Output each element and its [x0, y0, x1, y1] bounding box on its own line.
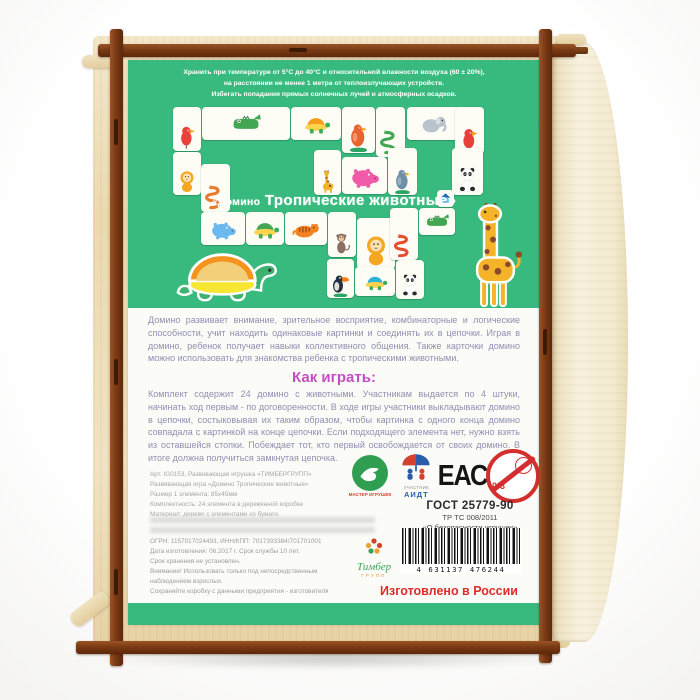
label-green-area: Хранить при температуре от 5°С до 40°С и… — [128, 60, 540, 308]
text-line: Дата изготовления: 06.2017 г. Срок служб… — [150, 547, 329, 557]
text-line: Арт. IG0153, Развивающая игрушка «ТИМБЕР… — [150, 470, 312, 480]
parrot-icon — [174, 108, 200, 150]
storage-note: Хранить при температуре от 5°С до 40°С и… — [128, 68, 540, 101]
made-in-russia: Изготовлено в России — [363, 584, 535, 598]
hippo-icon — [343, 158, 386, 193]
master-toys-icon — [352, 455, 388, 491]
master-toys-badge: МАСТЕР ИГРУШЕК — [348, 455, 392, 497]
game-title-main: Тропические животные» — [265, 192, 457, 209]
text-line: ОГРН: 1157017024493, ИНН/КПП: 7017393384… — [150, 537, 329, 547]
frame-bar-left — [110, 29, 123, 666]
monkey-icon — [329, 213, 355, 256]
turtle-icon — [356, 268, 394, 295]
certification-badges: МАСТЕР ИГРУШЕК УЧАСТНИК АИДТ ЕАС 0-3 — [348, 448, 540, 504]
age-warning-icon: 0-3 — [486, 449, 540, 503]
aidt-badge: УЧАСТНИК АИДТ — [394, 454, 438, 499]
domino-tile — [388, 148, 417, 195]
aidt-umbrella-icon — [399, 454, 433, 480]
domino-tile — [314, 150, 341, 195]
domino-tile — [246, 212, 284, 245]
lion-icon — [174, 153, 200, 194]
brand-sub: ГРУПП — [350, 573, 398, 578]
text-line: Сохраняйте коробку с данными предприятия… — [150, 587, 329, 597]
text-line: Внимание! Использовать только под непоср… — [150, 567, 329, 577]
text-line: наблюдением взрослых. — [150, 577, 329, 587]
product-details: Арт. IG0153, Развивающая игрушка «ТИМБЕР… — [150, 470, 312, 520]
elephant-icon — [408, 108, 459, 139]
text-line: Хранить при температуре от 5°С до 40°С и… — [128, 68, 540, 79]
panda-icon — [397, 261, 423, 298]
toucan-icon — [328, 260, 353, 297]
barcode: 4 631137 476244 — [400, 528, 522, 574]
domino-tile — [342, 157, 387, 194]
text-line: Размер 1 элемента: 85х45мм — [150, 490, 312, 500]
bird-icon — [343, 108, 374, 152]
how-to-play-heading: Как играть: — [128, 369, 540, 386]
domino-tile — [419, 208, 455, 235]
giraffe-illustration — [458, 202, 526, 308]
text-line: Комплектность: 24 элемента в деревянной … — [150, 500, 312, 510]
domino-tile — [173, 152, 201, 195]
domino-tile — [455, 107, 484, 154]
domino-tile — [201, 212, 245, 245]
frame-bar-right — [539, 29, 552, 663]
crocodile-icon — [203, 108, 289, 139]
game-title-prefix: «Домино — [212, 196, 261, 208]
game-title: «Домино Тропические животные» — [128, 192, 540, 210]
bird-icon — [389, 149, 416, 194]
wood-lid-panel — [552, 42, 628, 642]
domino-tile — [390, 208, 418, 260]
product-photo: Хранить при температуре от 5°С до 40°С и… — [0, 0, 700, 700]
barcode-stripes — [402, 528, 520, 564]
brand-logo: Тимбер ГРУПП — [350, 538, 398, 578]
domino-tile — [173, 107, 201, 151]
turtle-illustration — [174, 246, 292, 306]
brand-name: Тимбер — [350, 561, 398, 573]
domino-tile — [328, 212, 356, 257]
panda-icon — [453, 149, 482, 194]
barcode-digits: 4 631137 476244 — [402, 565, 520, 574]
text-line: Избегать попадания прямых солнечных луче… — [128, 90, 540, 101]
game-label: Хранить при температуре от 5°С до 40°С и… — [128, 60, 540, 625]
eac-mark: ЕАС — [438, 459, 487, 493]
turtle-icon — [247, 213, 283, 244]
about-text: Домино развивает внимание, зрительное во… — [148, 314, 520, 365]
parrot-icon — [456, 108, 483, 153]
domino-tile — [342, 107, 375, 153]
text-line: Развивающая игра «Домино Тропические жив… — [150, 480, 312, 490]
domino-tile — [291, 107, 341, 140]
turtle-icon — [292, 108, 340, 139]
text-line: Срок хранения не установлен. — [150, 557, 329, 567]
bottom-green-strip — [128, 603, 540, 625]
domino-tile — [202, 107, 290, 140]
tiger-icon — [286, 213, 326, 244]
crocodile-icon — [420, 209, 454, 234]
brand-tree-icon — [363, 538, 385, 556]
legal-info: ОГРН: 1157017024493, ИНН/КПП: 7017393384… — [150, 537, 329, 597]
frame-bar-bottom — [76, 641, 560, 654]
domino-tile — [285, 212, 327, 245]
domino-tile — [452, 148, 483, 195]
tr-ts-text: ТР ТС 008/2011 — [396, 513, 544, 522]
gost-text: ГОСТ 25779-90 — [396, 500, 544, 512]
domino-tile — [396, 260, 424, 299]
domino-tile — [407, 107, 460, 140]
text-line: на расстоянии не менее 1 метра от теплои… — [128, 79, 540, 90]
domino-tile — [327, 259, 354, 298]
hippo-icon — [202, 213, 244, 244]
snake-icon — [391, 209, 417, 259]
blurred-text-lines — [150, 517, 375, 537]
giraffe-icon — [315, 151, 340, 194]
domino-tile — [355, 267, 395, 296]
lion-icon — [358, 219, 394, 268]
frame-bar-top — [98, 44, 576, 57]
baby-face-icon — [515, 457, 532, 474]
